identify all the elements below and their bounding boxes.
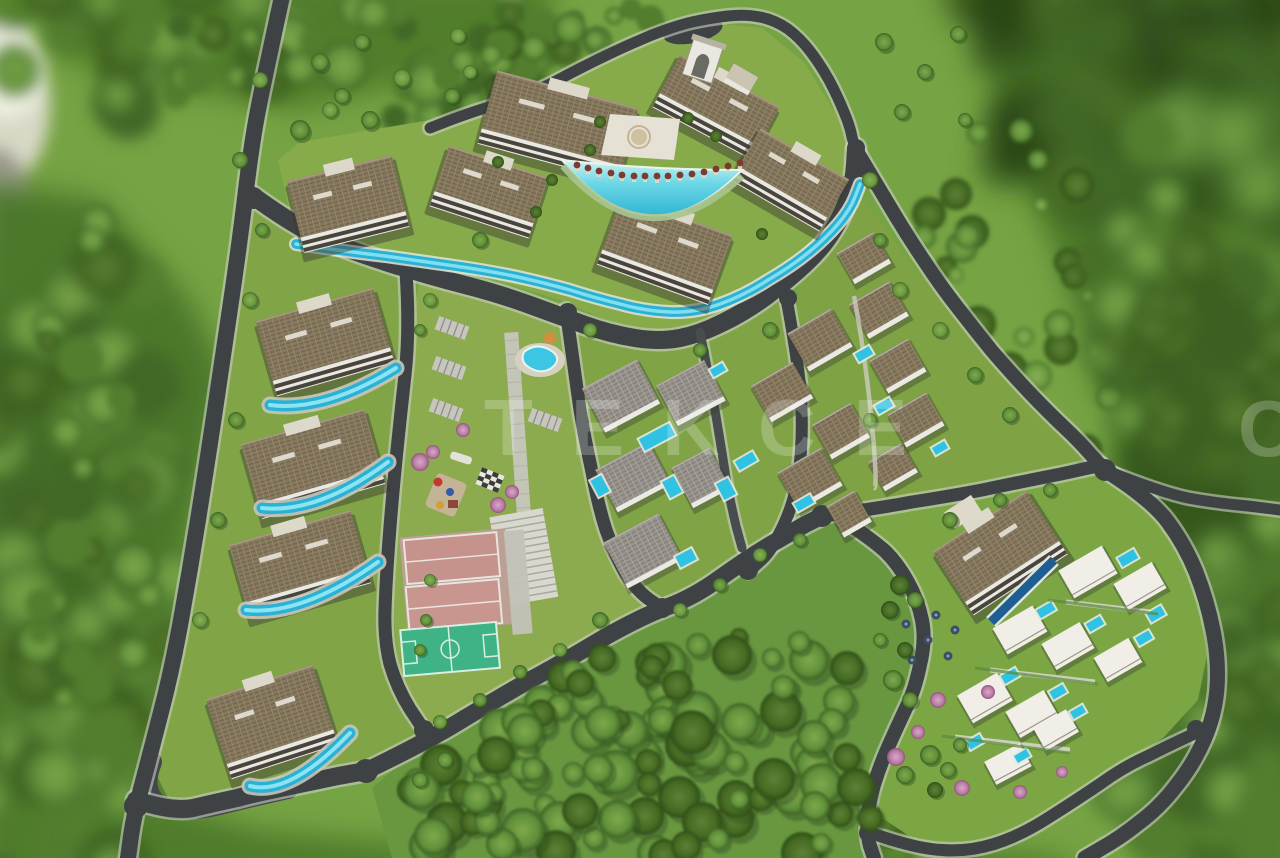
svg-text:C: C	[1238, 384, 1280, 473]
svg-text:TEKCE: TEKCE	[484, 383, 945, 472]
